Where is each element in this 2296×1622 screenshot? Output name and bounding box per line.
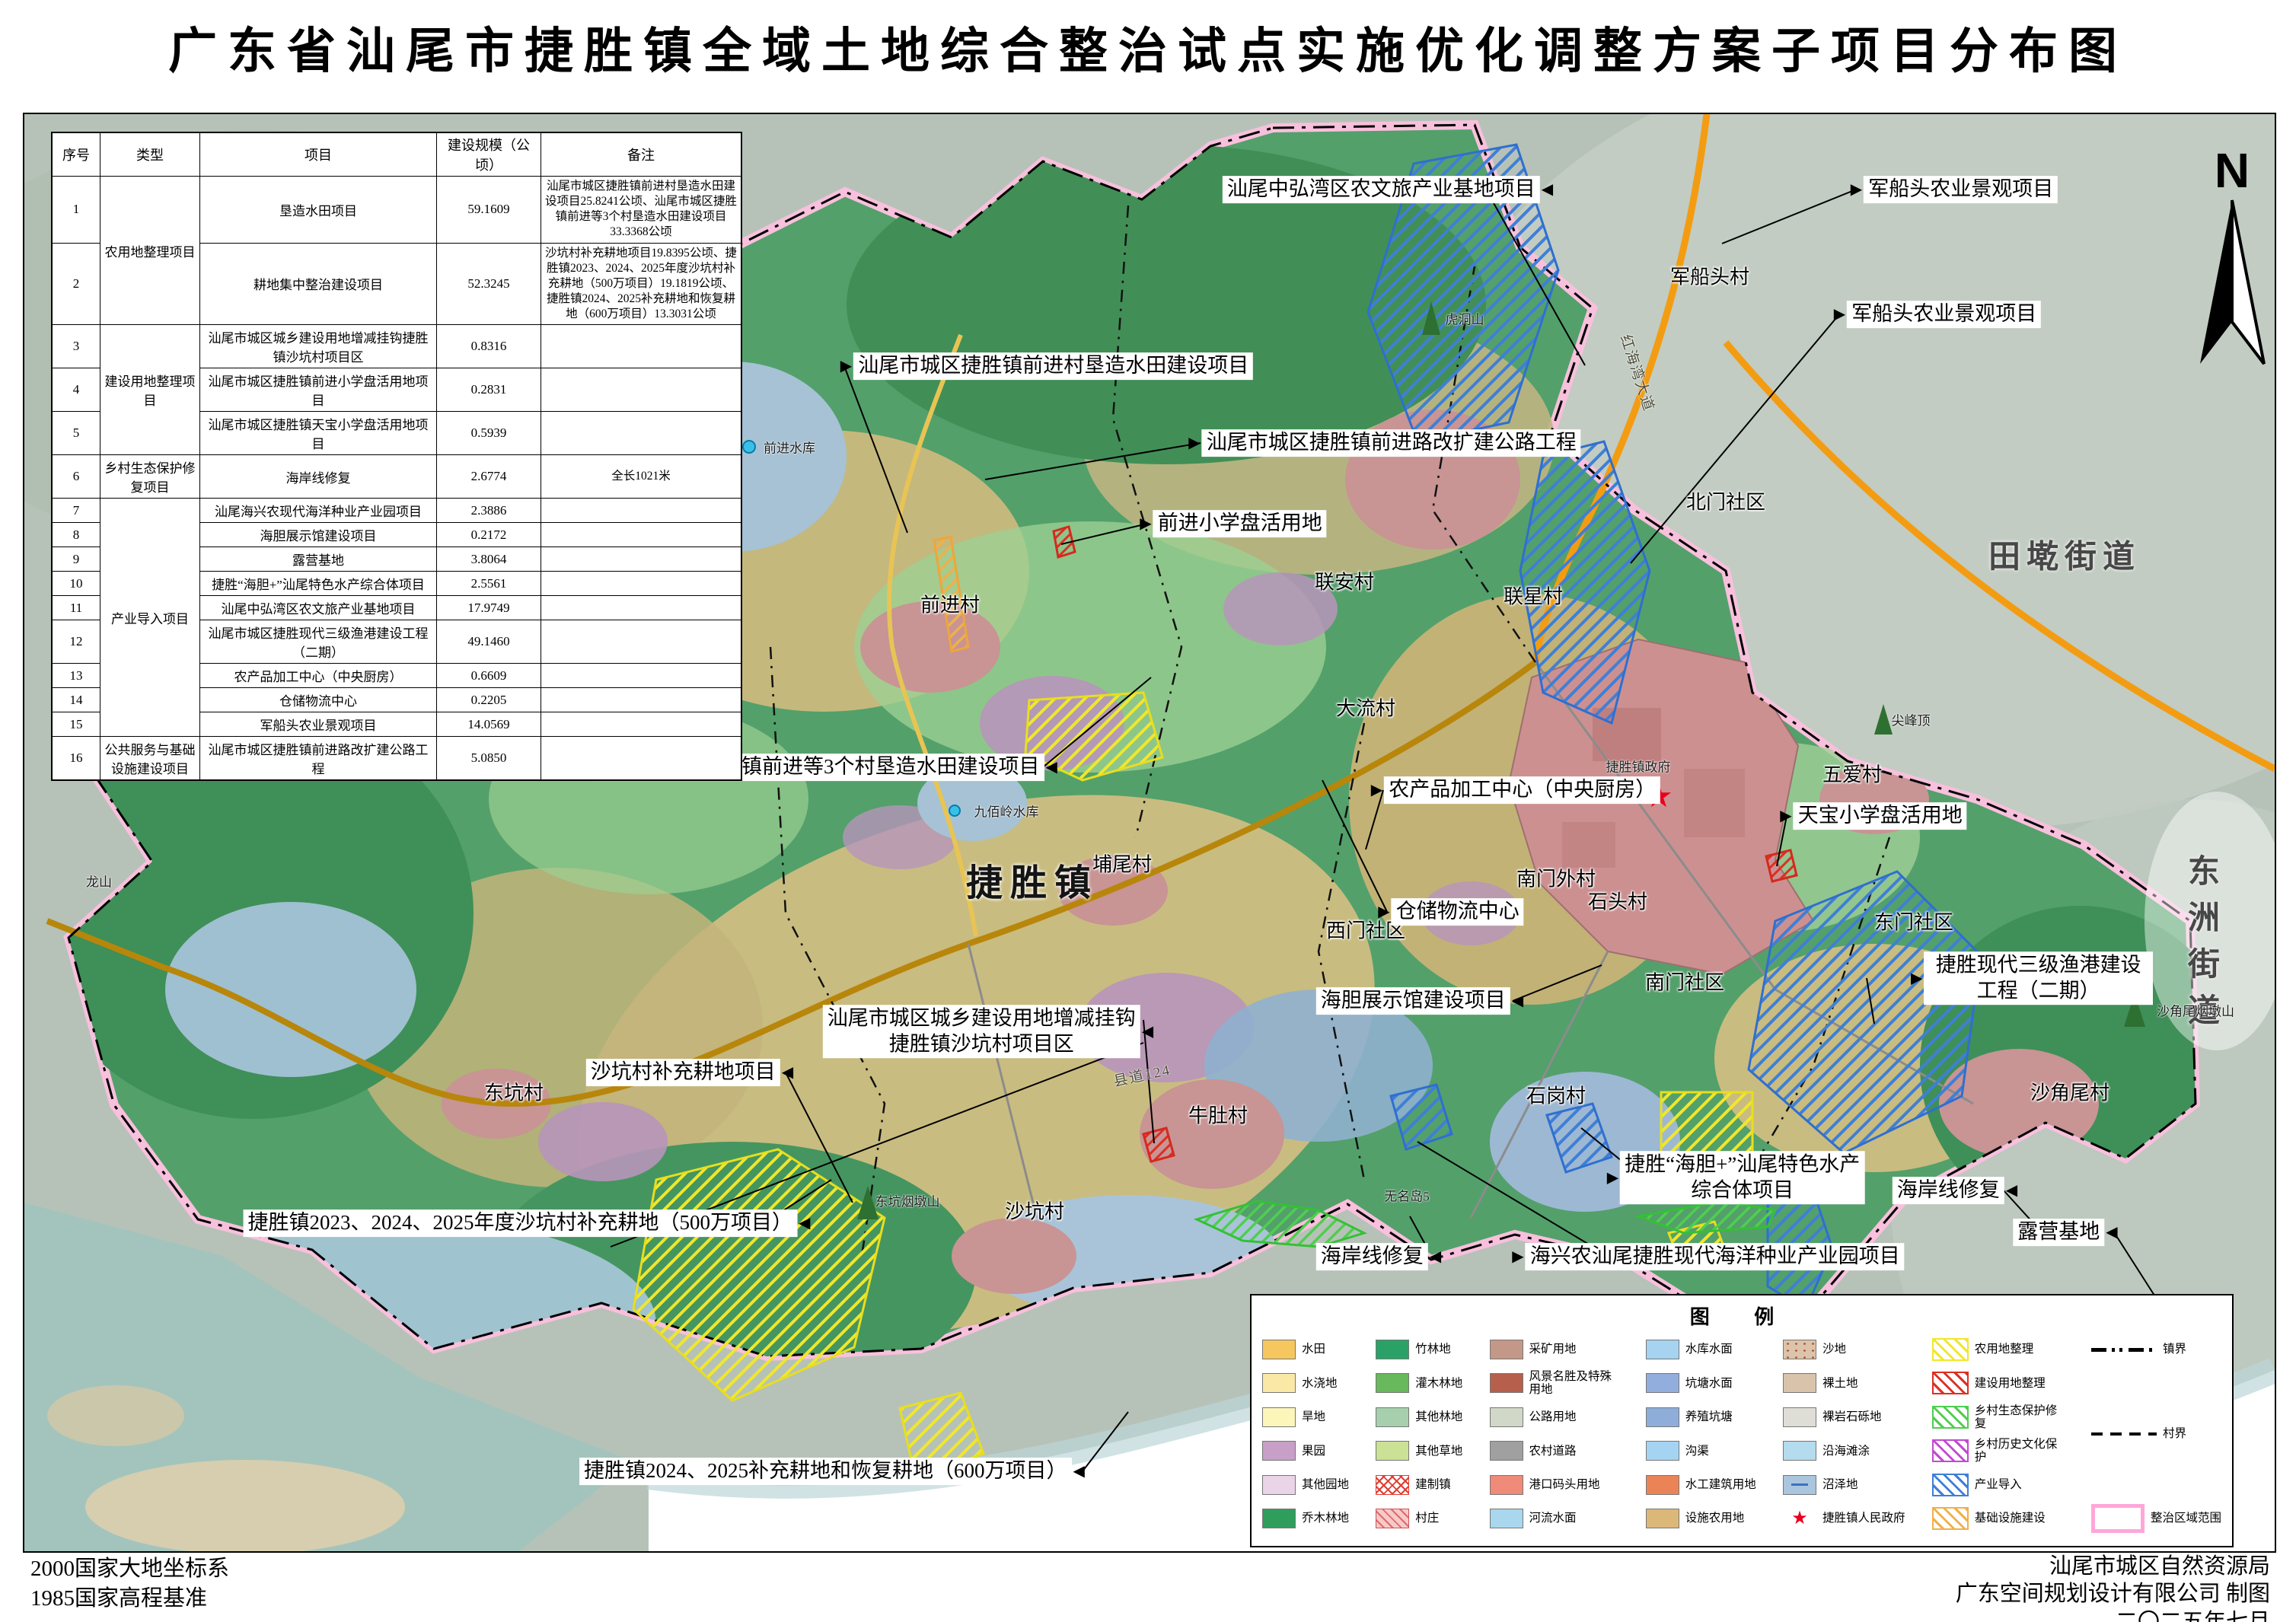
legend-label: 乡村历史文化保护 bbox=[1975, 1438, 2065, 1464]
legend-item: 水田 bbox=[1262, 1334, 1349, 1365]
map-label-text: 石头村 bbox=[1588, 887, 1647, 915]
legend-item: 农村道路 bbox=[1490, 1436, 1619, 1466]
table-cell: 公共服务与基础设施建设项目 bbox=[100, 737, 200, 781]
legend-swatch-line1-icon bbox=[2091, 1348, 2157, 1352]
map-label-text: 捷胜镇 bbox=[966, 852, 1099, 906]
leader-arrow-icon: ▶ bbox=[1832, 307, 1847, 322]
legend-column: 竹林地灌木林地其他林地其他草地建制镇村庄 bbox=[1376, 1334, 1462, 1534]
legend-item: 竹林地 bbox=[1376, 1334, 1462, 1365]
map-label-text: 东坑村 bbox=[484, 1078, 544, 1106]
legend-panel: 图 例 水田水浇地旱地果园其他园地乔木林地竹林地灌木林地其他林地其他草地建制镇村… bbox=[1250, 1294, 2234, 1547]
map-label-callout: ▶仓储物流中心 bbox=[1376, 898, 1523, 926]
leader-arrow-icon: ▶ bbox=[1778, 808, 1793, 824]
legend-column: 沙地裸土地裸岩石砾地沿海滩涂沼泽地★捷胜镇人民政府 bbox=[1783, 1334, 1905, 1534]
legend-label: 公路用地 bbox=[1529, 1410, 1577, 1423]
legend-item: 农用地整理 bbox=[1932, 1334, 2065, 1365]
map-label-text: 汕尾市城区城乡建设用地增减挂钩 捷胜镇沙坑村项目区 bbox=[823, 1005, 1140, 1058]
leader-arrow-icon: ▶ bbox=[1138, 516, 1153, 531]
map-label-small: 龙山 bbox=[86, 872, 112, 891]
table-cell: 捷胜“海胆+”汕尾特色水产综合体项目 bbox=[200, 572, 437, 596]
table-cell: 汕尾市城区城乡建设用地增减挂钩捷胜镇沙坑村项目区 bbox=[200, 325, 437, 368]
legend-column: 采矿用地风景名胜及特殊用地公路用地农村道路港口码头用地河流水面 bbox=[1490, 1334, 1619, 1534]
legend-label: 其他园地 bbox=[1302, 1478, 1349, 1491]
map-label-text: 尖峰顶 bbox=[1892, 710, 1931, 729]
table-cell bbox=[541, 596, 742, 620]
legend-label: 水库水面 bbox=[1685, 1343, 1733, 1356]
legend-swatch-fill-icon bbox=[1646, 1373, 1679, 1393]
legend-swatch-fill-icon bbox=[1646, 1407, 1679, 1427]
legend-label: 裸土地 bbox=[1822, 1377, 1858, 1390]
legend-swatch-fill-icon bbox=[1783, 1441, 1816, 1461]
legend-label: 风景名胜及特殊用地 bbox=[1529, 1370, 1619, 1396]
credit-line: 二〇二五年七月 bbox=[1956, 1608, 2270, 1622]
legend-swatch-fill-icon bbox=[1783, 1373, 1816, 1393]
map-label-callout: ▶军船头农业景观项目 bbox=[1832, 301, 2041, 328]
table-cell: 1 bbox=[52, 177, 100, 244]
legend-item: 果园 bbox=[1262, 1436, 1349, 1466]
table-cell bbox=[541, 412, 742, 455]
map-label-callout: ▶海兴农汕尾捷胜现代海洋种业产业园项目 bbox=[1510, 1243, 1904, 1270]
legend-item: 产业导入 bbox=[1932, 1470, 2065, 1500]
table-cell bbox=[541, 499, 742, 523]
map-label-village: 联星村 bbox=[1504, 582, 1563, 610]
table-cell bbox=[541, 547, 742, 572]
table-cell: 16 bbox=[52, 737, 100, 781]
map-label-text: 前进村 bbox=[920, 590, 980, 618]
leader-arrow-icon: ▶ bbox=[1909, 970, 1924, 986]
table-cell: 汕尾市城区捷胜镇天宝小学盘活用地项目 bbox=[200, 412, 437, 455]
datum-line: 2000国家大地坐标系 bbox=[30, 1554, 229, 1584]
table-row: 1农用地整理项目垦造水田项目59.1609汕尾市城区捷胜镇前进村垦造水田建设项目… bbox=[52, 177, 741, 244]
table-cell: 14 bbox=[52, 688, 100, 712]
table-cell: 0.5939 bbox=[437, 412, 541, 455]
leader-arrow-icon: ◀ bbox=[797, 1216, 812, 1231]
legend-item: 镇界 bbox=[2091, 1334, 2221, 1365]
map-label-village: 沙角尾村 bbox=[2030, 1078, 2109, 1106]
legend-label: 沼泽地 bbox=[1822, 1478, 1858, 1491]
map-label-village: 石岗村 bbox=[1526, 1081, 1586, 1109]
map-label-text: 沙角尾村 bbox=[2030, 1078, 2109, 1106]
legend-title: 图 例 bbox=[1262, 1302, 2221, 1330]
map-label-callout: ▶捷胜现代三级渔港建设工程（二期） bbox=[1909, 951, 2153, 1005]
map-label-text: 军船头农业景观项目 bbox=[1847, 301, 2041, 328]
map-label-village: 五爱村 bbox=[1822, 760, 1882, 788]
map-label-callout: ▶汕尾市城区捷胜镇前进村垦造水田建设项目 bbox=[839, 352, 1253, 380]
legend-item: 建设用地整理 bbox=[1932, 1368, 2065, 1398]
table-cell: 汕尾市城区捷胜现代三级渔港建设工程（二期） bbox=[200, 620, 437, 664]
table-cell bbox=[541, 712, 742, 737]
legend-column: 水库水面坑塘水面养殖坑塘沟渠水工建筑用地设施农用地 bbox=[1646, 1334, 1756, 1534]
leader-arrow-icon: ▶ bbox=[1370, 782, 1384, 798]
table-cell: 13 bbox=[52, 664, 100, 688]
table-cell: 农产品加工中心（中央厨房） bbox=[200, 664, 437, 688]
map-label-callout: 捷胜镇2024、2025补充耕地和恢复耕地（600万项目）◀ bbox=[579, 1458, 1086, 1485]
legend-label: 河流水面 bbox=[1529, 1512, 1577, 1525]
legend-item: 沿海滩涂 bbox=[1783, 1436, 1905, 1466]
legend-item: 村庄 bbox=[1376, 1503, 1462, 1534]
map-label-small: 东坑烟墩山 bbox=[875, 1191, 940, 1210]
legend-label: 农用地整理 bbox=[1975, 1343, 2034, 1356]
map-label-callout: 汕尾中弘湾区农文旅产业基地项目◀ bbox=[1223, 176, 1555, 203]
table-cell: 2 bbox=[52, 243, 100, 325]
map-label-small: 捷胜镇政府 bbox=[1606, 757, 1671, 776]
table-cell: 52.3245 bbox=[437, 243, 541, 325]
legend-label: 产业导入 bbox=[1975, 1478, 2022, 1491]
map-label-village: 联安村 bbox=[1315, 567, 1374, 595]
table-header: 序号 bbox=[52, 132, 100, 177]
legend-label: 坑塘水面 bbox=[1685, 1377, 1733, 1390]
table-row: 16公共服务与基础设施建设项目汕尾市城区捷胜镇前进路改扩建公路工程5.0850 bbox=[52, 737, 741, 781]
legend-label: 设施农用地 bbox=[1685, 1512, 1745, 1525]
map-label-village: 南门外村 bbox=[1516, 864, 1596, 892]
map-label-callout: ▶军船头农业景观项目 bbox=[1849, 176, 2058, 203]
leader-arrow-icon: ◀ bbox=[1072, 1464, 1086, 1479]
legend-label: 乔木林地 bbox=[1302, 1512, 1349, 1525]
map-label-text: 联安村 bbox=[1315, 567, 1374, 595]
legend-swatch-fill-icon bbox=[1490, 1509, 1523, 1528]
legend-item: 乔木林地 bbox=[1262, 1503, 1349, 1534]
table-cell bbox=[541, 325, 742, 368]
map-label-village: 沙坑村 bbox=[1005, 1197, 1064, 1225]
map-label-callout: ▶农产品加工中心（中央厨房） bbox=[1370, 776, 1660, 804]
table-header: 类型 bbox=[100, 132, 200, 177]
legend-label: 建设用地整理 bbox=[1975, 1377, 2046, 1390]
planning-map-sheet: 广东省汕尾市捷胜镇全域土地综合整治试点实施优化调整方案子项目分布图 bbox=[0, 0, 2296, 1622]
map-label-text: 海兴农汕尾捷胜现代海洋种业产业园项目 bbox=[1526, 1243, 1905, 1270]
table-cell: 军船头农业景观项目 bbox=[200, 712, 437, 737]
map-label-text: 石岗村 bbox=[1526, 1081, 1586, 1109]
legend-label: 其他林地 bbox=[1415, 1410, 1462, 1423]
map-label-text: 牛肚村 bbox=[1188, 1101, 1248, 1129]
map-label-village: 石头村 bbox=[1588, 887, 1647, 915]
map-label-callout: 海胆展示馆建设项目◀ bbox=[1316, 987, 1525, 1015]
table-cell: 0.2831 bbox=[437, 368, 541, 412]
map-label-village: 前进村 bbox=[920, 590, 980, 618]
table-cell: 汕尾市城区捷胜镇前进村垦造水田建设项目25.8241公顷、汕尾市城区捷胜镇前进等… bbox=[541, 177, 742, 244]
table-cell: 7 bbox=[52, 499, 100, 523]
map-label-small: 沙角尾烟墩山 bbox=[2157, 1001, 2234, 1020]
map-label-text: 露营基地 bbox=[2013, 1219, 2104, 1246]
map-label-text: 农产品加工中心（中央厨房） bbox=[1384, 776, 1660, 804]
table-cell: 2.6774 bbox=[437, 455, 541, 499]
legend-label: 水田 bbox=[1302, 1343, 1325, 1356]
legend-item: 坑塘水面 bbox=[1646, 1368, 1756, 1398]
legend-swatch-marsh-icon bbox=[1783, 1475, 1816, 1495]
map-label-text: 汕尾市城区捷胜镇前进路改扩建公路工程 bbox=[1202, 429, 1581, 457]
legend-label: 其他草地 bbox=[1415, 1445, 1462, 1458]
reservoir-dot bbox=[949, 805, 960, 816]
legend-swatch-star-icon: ★ bbox=[1783, 1509, 1816, 1528]
legend-swatch-fill-icon bbox=[1646, 1441, 1679, 1461]
map-label-text: 前进水库 bbox=[764, 438, 815, 457]
legend-swatch-crosshatch-icon bbox=[1376, 1475, 1409, 1495]
legend-label: 采矿用地 bbox=[1529, 1343, 1577, 1356]
map-label-callout: 露营基地◀ bbox=[2013, 1219, 2119, 1246]
table-cell bbox=[541, 688, 742, 712]
legend-label: 灌木林地 bbox=[1415, 1377, 1462, 1390]
legend-label: 竹林地 bbox=[1415, 1343, 1451, 1356]
map-label-village: 埔尾村 bbox=[1092, 849, 1152, 878]
map-label-text: 五爱村 bbox=[1822, 760, 1882, 788]
table-cell: 汕尾市城区捷胜镇前进路改扩建公路工程 bbox=[200, 737, 437, 781]
table-header: 项目 bbox=[200, 132, 437, 177]
legend-swatch-fill-icon bbox=[1262, 1407, 1296, 1427]
legend-item: 沙地 bbox=[1783, 1334, 1905, 1365]
legend-swatch-fill-icon bbox=[1490, 1475, 1523, 1495]
legend-item: 基础设施建设 bbox=[1932, 1503, 2065, 1534]
table-cell: 11 bbox=[52, 596, 100, 620]
map-label-small: 尖峰顶 bbox=[1892, 710, 1931, 729]
legend-item: 裸岩石砾地 bbox=[1783, 1402, 1905, 1432]
legend-swatch-fill-icon bbox=[1783, 1407, 1816, 1427]
legend-label: 基础设施建设 bbox=[1975, 1512, 2046, 1525]
legend-columns: 水田水浇地旱地果园其他园地乔木林地竹林地灌木林地其他林地其他草地建制镇村庄采矿用… bbox=[1262, 1334, 2221, 1534]
table-cell: 3 bbox=[52, 325, 100, 368]
map-label-text: 捷胜现代三级渔港建设工程（二期） bbox=[1924, 951, 2153, 1005]
legend-swatch-fill-icon bbox=[1262, 1509, 1296, 1528]
legend-label: 水工建筑用地 bbox=[1685, 1478, 1756, 1491]
legend-column: 农用地整理建设用地整理乡村生态保护修复乡村历史文化保护产业导入基础设施建设 bbox=[1932, 1334, 2065, 1534]
leader-arrow-icon: ◀ bbox=[1428, 1249, 1443, 1264]
legend-swatch-hatch-icon bbox=[1932, 1338, 1969, 1361]
map-label-text: 东门社区 bbox=[1874, 907, 1953, 935]
legend-item: 水工建筑用地 bbox=[1646, 1470, 1756, 1500]
map-label-small: 虎洞山 bbox=[1446, 309, 1484, 328]
map-label-village: 大流村 bbox=[1336, 693, 1395, 722]
map-label-text: 沙角尾烟墩山 bbox=[2157, 1001, 2234, 1020]
map-label-text: 捷胜“海胆+”汕尾特色水产 综合体项目 bbox=[1620, 1151, 1864, 1204]
map-label-text: 田墘街道 bbox=[1988, 531, 2141, 578]
legend-swatch-hatch-icon bbox=[1932, 1474, 1969, 1496]
table-cell: 垦造水田项目 bbox=[200, 177, 437, 244]
legend-item: 风景名胜及特殊用地 bbox=[1490, 1368, 1619, 1398]
map-label-callout: 海岸线修复◀ bbox=[1316, 1243, 1443, 1270]
table-header: 建设规模（公顷） bbox=[437, 132, 541, 177]
table-row: 3建设用地整理项目汕尾市城区城乡建设用地增减挂钩捷胜镇沙坑村项目区0.8316 bbox=[52, 325, 741, 368]
legend-swatch-fill-icon bbox=[1490, 1373, 1523, 1393]
legend-swatch-fill-icon bbox=[1376, 1407, 1409, 1427]
map-label-small: 无名岛5 bbox=[1384, 1186, 1430, 1205]
table-cell: 汕尾中弘湾区农文旅产业基地项目 bbox=[200, 596, 437, 620]
map-label-small: 九佰岭水库 bbox=[974, 801, 1039, 821]
map-label-village: 牛肚村 bbox=[1188, 1101, 1248, 1129]
table-cell: 海岸线修复 bbox=[200, 455, 437, 499]
credit-line: 汕尾市城区自然资源局 bbox=[1956, 1553, 2270, 1580]
table-cell: 2.5561 bbox=[437, 572, 541, 596]
legend-swatch-fill-icon bbox=[1376, 1340, 1409, 1359]
map-label-small: 前进水库 bbox=[764, 438, 815, 457]
legend-swatch-line2-icon bbox=[2091, 1432, 2157, 1436]
legend-label: 果园 bbox=[1302, 1445, 1325, 1458]
table-cell: 5 bbox=[52, 412, 100, 455]
table-cell: 2.3886 bbox=[437, 499, 541, 523]
map-label-text: 军船头村 bbox=[1670, 262, 1749, 290]
map-label-town: 捷胜镇 bbox=[966, 852, 1099, 906]
legend-swatch-fill-icon bbox=[1376, 1373, 1409, 1393]
map-label-text: 埔尾村 bbox=[1092, 849, 1152, 878]
map-label-text: 前进小学盘活用地 bbox=[1153, 510, 1327, 537]
table-cell: 0.2172 bbox=[437, 523, 541, 547]
north-arrow: N bbox=[2186, 143, 2278, 379]
map-label-text: 南门社区 bbox=[1645, 967, 1724, 996]
map-label-text: 无名岛5 bbox=[1384, 1186, 1430, 1205]
legend-swatch-fill-icon bbox=[1262, 1373, 1296, 1393]
legend-item: 灌木林地 bbox=[1376, 1368, 1462, 1398]
datum-line: 1985国家高程基准 bbox=[30, 1584, 229, 1614]
map-label-text: 捷胜镇2024、2025补充耕地和恢复耕地（600万项目） bbox=[579, 1458, 1072, 1485]
legend-item: 设施农用地 bbox=[1646, 1503, 1756, 1534]
table-cell: 14.0569 bbox=[437, 712, 541, 737]
leader-arrow-icon: ◀ bbox=[1510, 993, 1525, 1009]
legend-item: 沟渠 bbox=[1646, 1436, 1756, 1466]
map-label-text: 天宝小学盘活用地 bbox=[1794, 802, 1967, 830]
legend-label: 乡村生态保护修复 bbox=[1975, 1404, 2065, 1430]
credit-line: 广东空间规划设计有限公司 制图 bbox=[1956, 1580, 2270, 1608]
leader-arrow-icon: ▶ bbox=[1849, 182, 1864, 197]
legend-item: 公路用地 bbox=[1490, 1402, 1619, 1432]
legend-swatch-hatch-icon bbox=[1932, 1439, 1969, 1462]
table-cell: 9 bbox=[52, 547, 100, 572]
table-cell bbox=[541, 737, 742, 781]
table-cell: 耕地集中整治建设项目 bbox=[200, 243, 437, 325]
legend-item: 旱地 bbox=[1262, 1402, 1349, 1432]
legend-swatch-hatch-icon bbox=[1932, 1406, 1969, 1429]
legend-label: 旱地 bbox=[1302, 1410, 1325, 1423]
table-cell: 0.2205 bbox=[437, 688, 541, 712]
map-label-village: 南门社区 bbox=[1645, 967, 1724, 996]
legend-item: 采矿用地 bbox=[1490, 1334, 1619, 1365]
map-label-text: 龙山 bbox=[86, 872, 112, 891]
leader-arrow-icon: ◀ bbox=[2104, 1225, 2119, 1240]
map-label-text: 军船头农业景观项目 bbox=[1864, 176, 2058, 203]
map-label-text: 海胆展示馆建设项目 bbox=[1316, 987, 1510, 1015]
legend-column: 镇界村界整治区域范围 bbox=[2091, 1334, 2221, 1534]
legend-swatch-dots-icon bbox=[1783, 1340, 1816, 1359]
table-cell: 4 bbox=[52, 368, 100, 412]
table-cell: 全长1021米 bbox=[541, 455, 742, 499]
leader-arrow-icon: ▶ bbox=[839, 358, 853, 374]
legend-item: 沼泽地 bbox=[1783, 1470, 1905, 1500]
map-label-text: 捷胜镇2023、2024、2025年度沙坑村补充耕地（500万项目） bbox=[244, 1209, 798, 1237]
table-cell: 乡村生态保护修复项目 bbox=[100, 455, 200, 499]
map-label-callout: ▶汕尾市城区捷胜镇前进路改扩建公路工程 bbox=[1187, 429, 1580, 457]
table-cell: 0.8316 bbox=[437, 325, 541, 368]
legend-item: ★捷胜镇人民政府 bbox=[1783, 1503, 1905, 1534]
legend-swatch-fill-icon bbox=[1490, 1340, 1523, 1359]
table-cell bbox=[541, 368, 742, 412]
map-label-text: 海岸线修复 bbox=[1316, 1243, 1428, 1270]
table-cell: 10 bbox=[52, 572, 100, 596]
legend-item: 其他草地 bbox=[1376, 1436, 1462, 1466]
legend-label: 沙地 bbox=[1822, 1343, 1846, 1356]
legend-swatch-fill-icon bbox=[1262, 1340, 1296, 1359]
legend-item: 水浇地 bbox=[1262, 1368, 1349, 1398]
map-label-callout: ▶天宝小学盘活用地 bbox=[1778, 802, 1966, 830]
table-cell: 5.0850 bbox=[437, 737, 541, 781]
map-label-village: 东坑村 bbox=[484, 1078, 544, 1106]
credits: 汕尾市城区自然资源局 广东空间规划设计有限公司 制图 二〇二五年七月 bbox=[1956, 1553, 2270, 1622]
map-label-village: 军船头村 bbox=[1670, 262, 1749, 290]
map-label-text: 北门社区 bbox=[1686, 487, 1765, 515]
legend-label: 镇界 bbox=[2163, 1343, 2186, 1356]
table-cell: 59.1609 bbox=[437, 177, 541, 244]
leader-arrow-icon: ◀ bbox=[1540, 182, 1555, 197]
legend-label: 捷胜镇人民政府 bbox=[1822, 1512, 1905, 1525]
map-label-callout: 沙坑村补充耕地项目◀ bbox=[586, 1059, 795, 1086]
table-cell: 农用地整理项目 bbox=[100, 177, 200, 325]
leader-arrow-icon: ◀ bbox=[1044, 760, 1059, 775]
leader-arrow-icon: ▶ bbox=[1510, 1249, 1525, 1264]
legend-swatch-fill-icon bbox=[1490, 1441, 1523, 1461]
map-label-text: 东坑烟墩山 bbox=[875, 1191, 940, 1210]
datum-note: 2000国家大地坐标系 1985国家高程基准 bbox=[30, 1554, 229, 1614]
project-table: 序号类型项目建设规模（公顷）备注1农用地整理项目垦造水田项目59.1609汕尾市… bbox=[51, 132, 742, 781]
leader-arrow-icon: ◀ bbox=[780, 1065, 795, 1080]
legend-label: 农村道路 bbox=[1529, 1445, 1577, 1458]
legend-swatch-fill-icon bbox=[1646, 1340, 1679, 1359]
legend-label: 沟渠 bbox=[1685, 1445, 1709, 1458]
legend-item: 河流水面 bbox=[1490, 1503, 1619, 1534]
legend-swatch-villagehatch-icon bbox=[1376, 1509, 1409, 1528]
leader-arrow-icon: ▶ bbox=[1606, 1170, 1620, 1185]
table-header: 备注 bbox=[541, 132, 742, 177]
table-cell: 49.1460 bbox=[437, 620, 541, 664]
map-label-village: 北门社区 bbox=[1686, 487, 1765, 515]
table-cell bbox=[541, 620, 742, 664]
legend-label: 建制镇 bbox=[1415, 1478, 1451, 1491]
map-label-callout: ▶捷胜“海胆+”汕尾特色水产 综合体项目 bbox=[1606, 1151, 1865, 1204]
legend-swatch-fill-icon bbox=[1262, 1441, 1296, 1461]
map-label-text: 海岸线修复 bbox=[1893, 1177, 2004, 1204]
map-label-text: 大流村 bbox=[1336, 693, 1395, 722]
legend-item: 水库水面 bbox=[1646, 1334, 1756, 1365]
table-row: 6乡村生态保护修复项目海岸线修复2.6774全长1021米 bbox=[52, 455, 741, 499]
legend-swatch-hatch-icon bbox=[1932, 1507, 1969, 1530]
legend-swatch-outline-icon bbox=[2091, 1504, 2145, 1533]
table-cell bbox=[541, 572, 742, 596]
legend-label: 整治区域范围 bbox=[2151, 1512, 2221, 1525]
map-label-text: 联星村 bbox=[1504, 582, 1563, 610]
map-label-callout: 汕尾市城区城乡建设用地增减挂钩 捷胜镇沙坑村项目区◀ bbox=[823, 1005, 1155, 1058]
legend-item: 整治区域范围 bbox=[2091, 1503, 2221, 1534]
table-cell: 3.8064 bbox=[437, 547, 541, 572]
legend-item: 其他林地 bbox=[1376, 1402, 1462, 1432]
legend-item: 建制镇 bbox=[1376, 1470, 1462, 1500]
map-label-text: 沙坑村 bbox=[1005, 1197, 1064, 1225]
legend-label: 村界 bbox=[2163, 1427, 2186, 1440]
table-cell bbox=[541, 664, 742, 688]
table-cell: 汕尾海兴农现代海洋种业产业园项目 bbox=[200, 499, 437, 523]
legend-label: 养殖坑塘 bbox=[1685, 1410, 1733, 1423]
legend-label: 沿海滩涂 bbox=[1822, 1445, 1870, 1458]
legend-item: 裸土地 bbox=[1783, 1368, 1905, 1398]
legend-item: 乡村历史文化保护 bbox=[1932, 1436, 2065, 1466]
map-label-text: 沙坑村补充耕地项目 bbox=[586, 1059, 780, 1086]
table-cell: 露营基地 bbox=[200, 547, 437, 572]
table-row: 7产业导入项目汕尾海兴农现代海洋种业产业园项目2.3886 bbox=[52, 499, 741, 523]
legend-label: 村庄 bbox=[1415, 1512, 1439, 1525]
map-label-text: 九佰岭水库 bbox=[974, 801, 1039, 821]
map-label-text: 汕尾市城区捷胜镇前进村垦造水田建设项目 bbox=[853, 352, 1253, 380]
map-label-text: 汕尾中弘湾区农文旅产业基地项目 bbox=[1223, 176, 1540, 203]
map-label-district: 田墘街道 bbox=[1988, 531, 2141, 578]
table-cell: 12 bbox=[52, 620, 100, 664]
legend-swatch-fill-icon bbox=[1262, 1475, 1296, 1495]
table-cell: 6 bbox=[52, 455, 100, 499]
legend-label: 水浇地 bbox=[1302, 1377, 1338, 1390]
table-cell: 建设用地整理项目 bbox=[100, 325, 200, 455]
map-label-village: 东门社区 bbox=[1874, 907, 1953, 935]
